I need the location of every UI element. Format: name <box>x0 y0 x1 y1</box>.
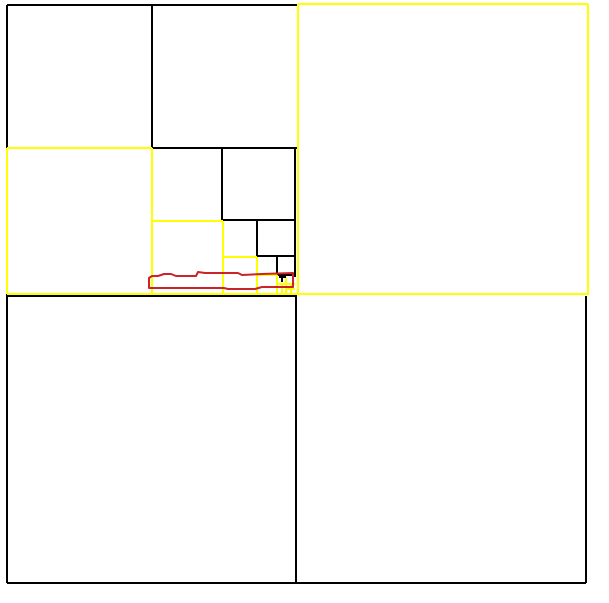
recursive-squares-figure <box>0 0 609 603</box>
red-freehand-rectangle <box>149 272 293 289</box>
figure-canvas <box>0 0 609 603</box>
